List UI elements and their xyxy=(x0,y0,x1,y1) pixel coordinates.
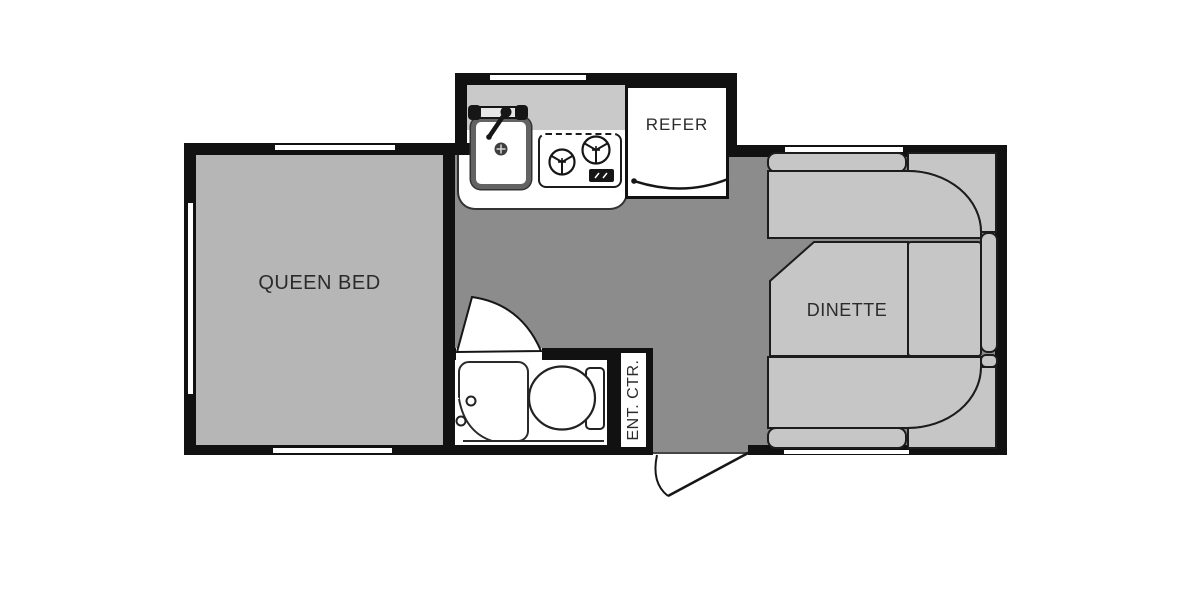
bedroom-wall-right xyxy=(443,155,455,348)
ent-ctr-label: ENT. CTR. xyxy=(623,350,645,450)
window-kitchen-top xyxy=(489,74,587,81)
dinette-wall-right xyxy=(995,145,1007,455)
queen-bed-area xyxy=(196,155,443,445)
entry-door-leaf xyxy=(668,452,750,496)
refer-label: REFER xyxy=(625,115,729,135)
entry-door-swing-arc xyxy=(655,455,668,496)
window-dinette-bottom xyxy=(783,449,910,455)
bathroom-interior xyxy=(455,360,607,445)
entry-door xyxy=(653,452,750,496)
window-dinette-top xyxy=(784,146,904,153)
window-bedroom-top xyxy=(274,144,396,151)
window-bedroom-left xyxy=(187,202,194,395)
sink xyxy=(471,117,531,189)
window-bedroom-bottom xyxy=(272,447,393,454)
bathroom-door-opening xyxy=(456,348,542,360)
queen-bed-label: QUEEN BED xyxy=(196,272,443,295)
dinette-label: DINETTE xyxy=(777,300,917,321)
kitchen-wall-left xyxy=(455,73,467,155)
refrigerator-box xyxy=(625,85,729,199)
floorplan-canvas: QUEEN BED DINETTE REFER ENT. CTR. xyxy=(0,0,1200,600)
stove xyxy=(538,133,622,188)
entry-threshold-floor xyxy=(653,445,748,452)
